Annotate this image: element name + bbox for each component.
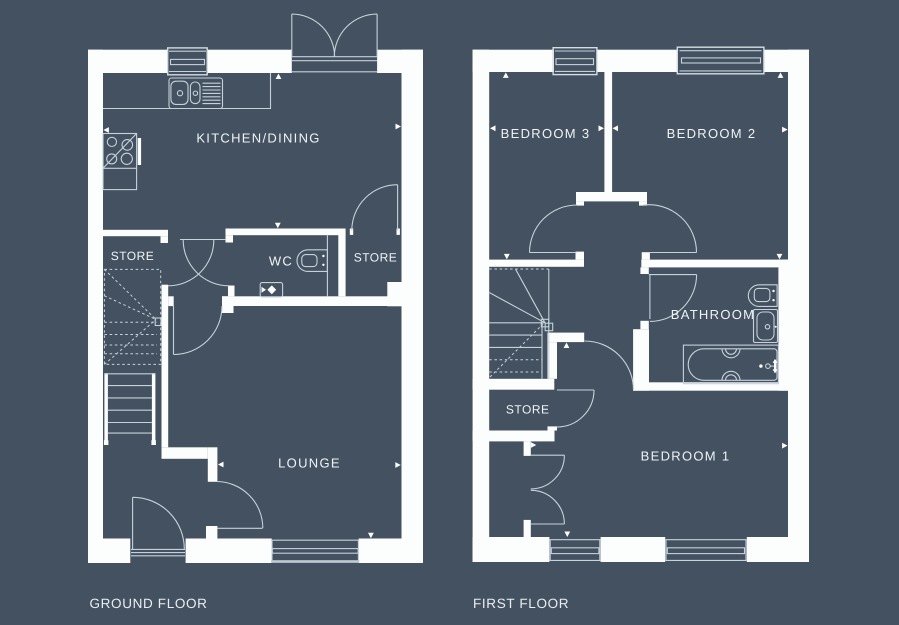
svg-text:FIRST FLOOR: FIRST FLOOR <box>473 596 569 611</box>
svg-text:BEDROOM 2: BEDROOM 2 <box>667 126 757 141</box>
svg-text:LOUNGE: LOUNGE <box>278 456 341 471</box>
svg-text:STORE: STORE <box>506 403 550 417</box>
svg-text:BEDROOM 3: BEDROOM 3 <box>501 126 591 141</box>
svg-text:WC: WC <box>269 253 293 268</box>
svg-text:BEDROOM 1: BEDROOM 1 <box>641 449 731 464</box>
svg-text:GROUND FLOOR: GROUND FLOOR <box>90 596 208 611</box>
svg-text:BATHROOM: BATHROOM <box>671 307 756 322</box>
svg-text:STORE: STORE <box>111 249 155 263</box>
svg-text:KITCHEN/DINING: KITCHEN/DINING <box>196 131 320 146</box>
svg-text:STORE: STORE <box>354 251 398 265</box>
